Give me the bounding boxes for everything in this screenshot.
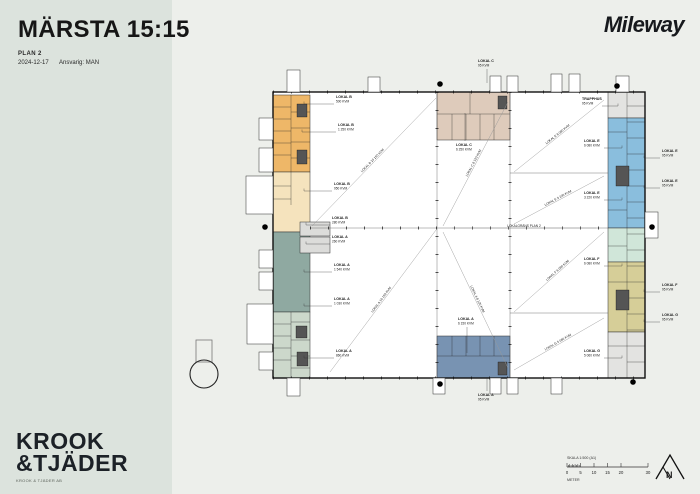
callout-title: LOKAL B (334, 182, 350, 186)
callout-title: LOKAL B (338, 123, 354, 127)
zone-core-inset-lower (300, 237, 330, 253)
zone-right-gray-bottom (608, 332, 645, 378)
scale-label: SKALA 1:500 (A1) (567, 456, 596, 460)
scale-tick-10: 10 (592, 470, 597, 475)
callout-area: 3 220 KVM (584, 196, 600, 200)
north-arrow-icon: N (656, 455, 684, 480)
studio-line2: &TJÄDER (16, 453, 128, 475)
callout-title: LOKAL F (662, 283, 678, 287)
callout-area: 95 KVM (582, 102, 594, 106)
callout-title: LOKAL C (456, 143, 472, 147)
scale-tick-30: 30 (646, 470, 651, 475)
north-letter: N (666, 470, 673, 480)
callout-title: LOKAL E (584, 191, 600, 195)
callout-area: 6 080 KVM (584, 144, 600, 148)
callout-area: 1 250 KVM (338, 128, 354, 132)
callout-area: 5 060 KVM (584, 354, 600, 358)
callout-area: 280 KVM (332, 221, 345, 225)
callout-title: LOKAL A (334, 297, 350, 301)
callout-title: LOKAL E (584, 139, 600, 143)
callout-area: 1 540 KVM (334, 268, 350, 272)
zone-right-gray-top (608, 92, 645, 118)
scale-unit: METER (567, 478, 580, 482)
callout-title: LOKAL A (458, 317, 474, 321)
studio-tagline: KROOK & TJÄDER AB (16, 479, 128, 483)
callout-title: LOKAL A (336, 349, 352, 353)
callout-area: 6 250 KVM (456, 148, 472, 152)
callout-area: 6 080 KVM (584, 262, 600, 266)
area-leader-label: LOKALGRÄNS PLAN 2 (507, 224, 541, 228)
callout-title: LOKAL C (478, 59, 494, 63)
studio-logo: KROOK &TJÄDER KROOK & TJÄDER AB (16, 431, 128, 482)
scale-tick-20: 20 (619, 470, 624, 475)
callout-title: LOKAL G (662, 313, 678, 317)
callout-area: 95 KVM (662, 184, 674, 188)
callout-title: TRAPPHUS (582, 97, 602, 101)
callout-area: 1 030 KVM (334, 302, 350, 306)
zone-mint (608, 228, 645, 262)
callout-title: LOKAL B (336, 95, 352, 99)
callout-area: 95 KVM (662, 154, 674, 158)
callout-title: LOKAL E (662, 179, 678, 183)
callout-area: 95 KVM (478, 398, 490, 402)
zone-core-inset-upper (300, 222, 330, 236)
callout-area: 95 KVM (478, 64, 490, 68)
scale-tick-5: 5 (579, 470, 582, 475)
callout-title: LOKAL E (662, 149, 678, 153)
callout-area: 95 KVM (662, 318, 674, 322)
callout-title: LOKAL G (584, 349, 600, 353)
callout-area: 860 KVM (336, 354, 349, 358)
callout-title: LOKAL A (478, 393, 494, 397)
callout-area: 260 KVM (332, 240, 345, 244)
callout-area: 950 KVM (334, 187, 347, 191)
scale-tick-15: 15 (605, 470, 610, 475)
callout-title: LOKAL F (584, 257, 600, 261)
callout-title: LOKAL B (332, 216, 348, 220)
tank-symbol (190, 340, 218, 388)
callout-area: 95 KVM (662, 288, 674, 292)
callout-title: LOKAL A (334, 263, 350, 267)
scale-bar: SKALA 1:500 (A1) 0 5 10 15 20 30 METER (566, 456, 651, 482)
callout-area: 500 KVM (336, 100, 349, 104)
callout-area: 6 150 KVM (458, 322, 474, 326)
floor-plan-drawing: LOKAL B500 KVMLOKAL B1 250 KVMLOKAL B950… (0, 0, 700, 494)
callout-title: LOKAL A (332, 235, 348, 239)
scale-tick-0: 0 (566, 470, 569, 475)
